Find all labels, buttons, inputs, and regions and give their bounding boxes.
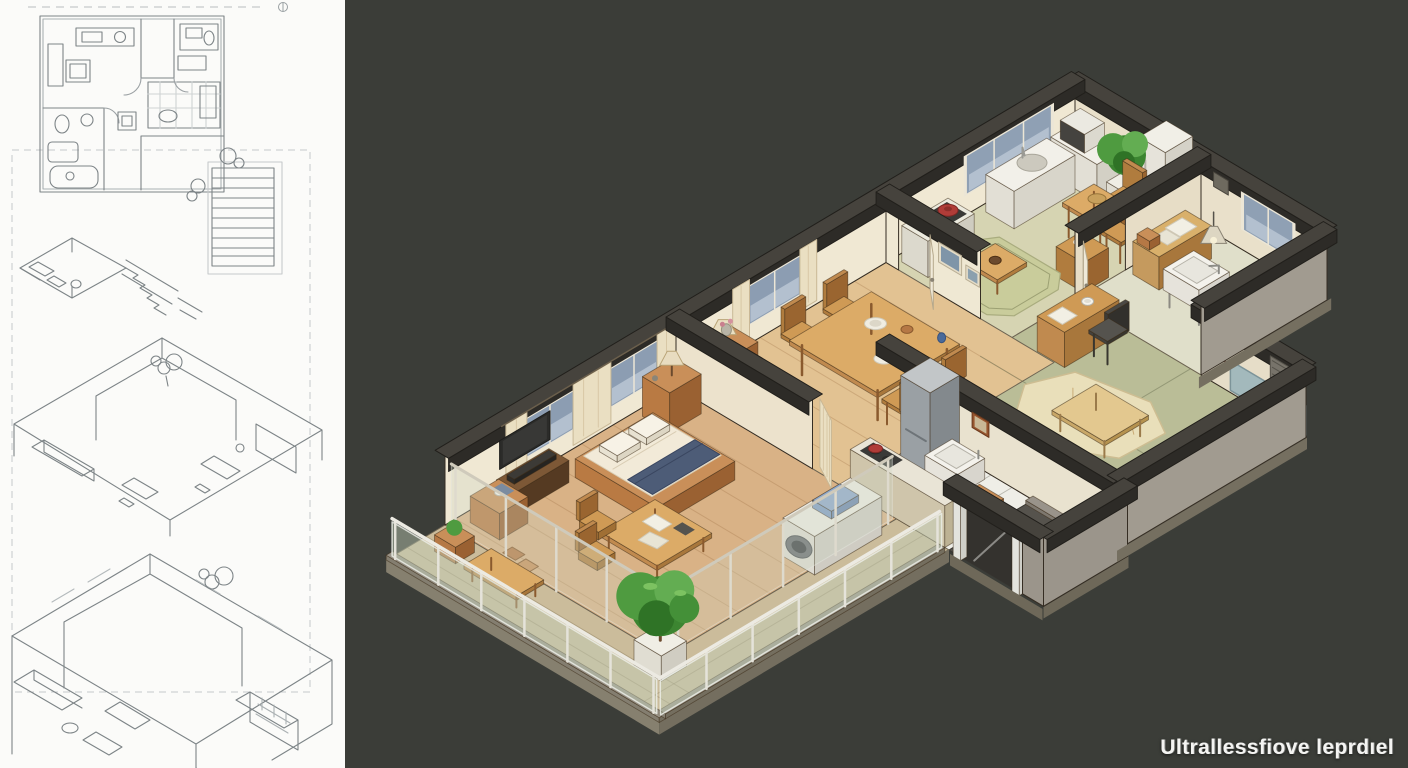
watermark-text: Ultrallessfiove leprdıel (1160, 736, 1394, 760)
teapot (989, 256, 1001, 264)
floor-chair (576, 501, 580, 522)
isometric-apartment-render (0, 0, 1408, 768)
clock (652, 375, 658, 381)
red-pot (869, 444, 883, 452)
blue-jar (938, 333, 946, 343)
screenshot-root: Ultrallessfiove leprdıel (0, 0, 1408, 768)
bowl (901, 325, 913, 333)
